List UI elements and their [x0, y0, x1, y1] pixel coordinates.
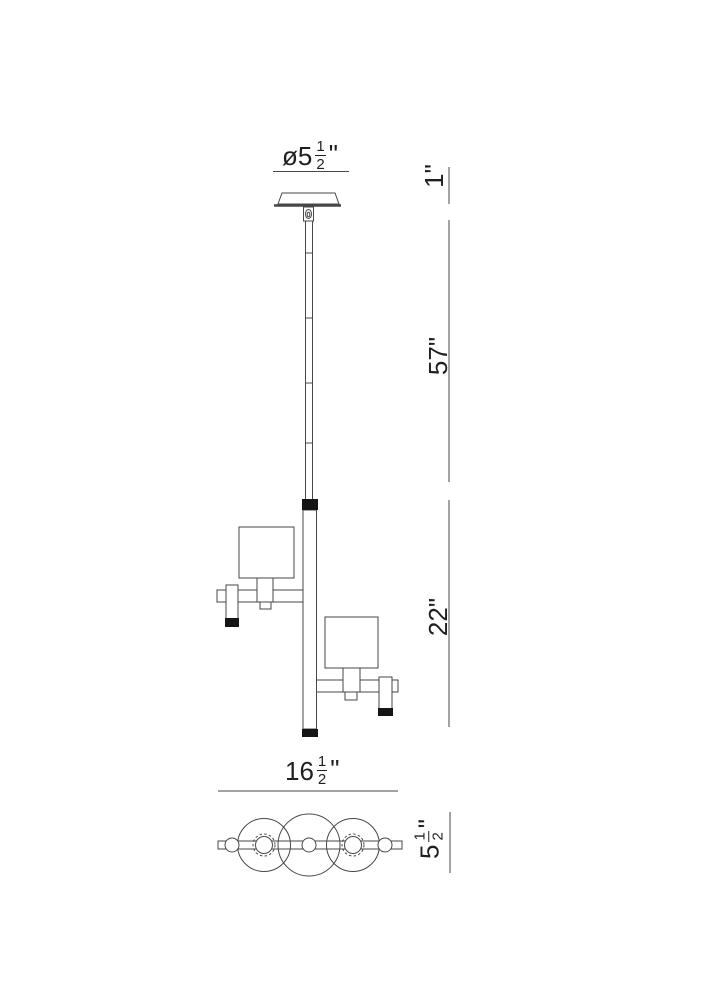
fixture-width-label: 16 1 2 "	[285, 758, 340, 788]
plan-right-end-knob	[378, 838, 392, 852]
fixture-depth-value: 5	[416, 845, 442, 859]
fixture-depth-fraction: 1 2	[412, 831, 446, 841]
stem-rod	[306, 221, 313, 500]
tube-bottom-cap	[302, 729, 318, 737]
left-cylinder-cap	[225, 618, 239, 627]
fixture-depth-label: 5 1 2 "	[416, 819, 446, 859]
plan-right-hub	[345, 837, 362, 854]
inch-mark: "	[329, 143, 338, 166]
plan-left-hub	[256, 837, 273, 854]
right-cylinder-cap	[378, 708, 393, 716]
left-socket	[257, 578, 273, 602]
dimension-drawing-sheet: ø5 1 2 " 1" 57" 22" 16 1 2 " 5 1 2 "	[0, 0, 707, 1000]
left-end-cylinder	[226, 585, 238, 619]
right-end-cylinder	[379, 677, 392, 709]
tube-top-cap	[302, 499, 318, 510]
right-socket	[343, 668, 360, 692]
body-height-label: 22"	[425, 598, 451, 636]
inch-mark: "	[330, 758, 339, 781]
plan-center-hub	[302, 838, 316, 852]
inch-mark: "	[416, 819, 439, 828]
pendant-light-drawing	[0, 0, 707, 1000]
left-socket-notch	[260, 602, 271, 609]
left-shade	[239, 527, 294, 578]
canopy-diameter-value: ø5	[282, 143, 312, 169]
plan-left-end-knob	[225, 838, 239, 852]
rod-drop-label: 57"	[425, 337, 451, 375]
canopy-diameter-label: ø5 1 2 "	[282, 143, 338, 173]
fixture-width-value: 16	[285, 758, 314, 784]
canopy-diameter-fraction: 1 2	[315, 139, 325, 173]
center-tube	[303, 510, 317, 729]
right-socket-notch	[345, 692, 357, 700]
canopy-height-label: 1"	[421, 164, 447, 188]
right-shade	[325, 617, 378, 668]
fixture-width-fraction: 1 2	[317, 754, 327, 788]
front-view	[217, 193, 398, 737]
plan-view	[218, 814, 402, 876]
canopy	[278, 193, 339, 204]
